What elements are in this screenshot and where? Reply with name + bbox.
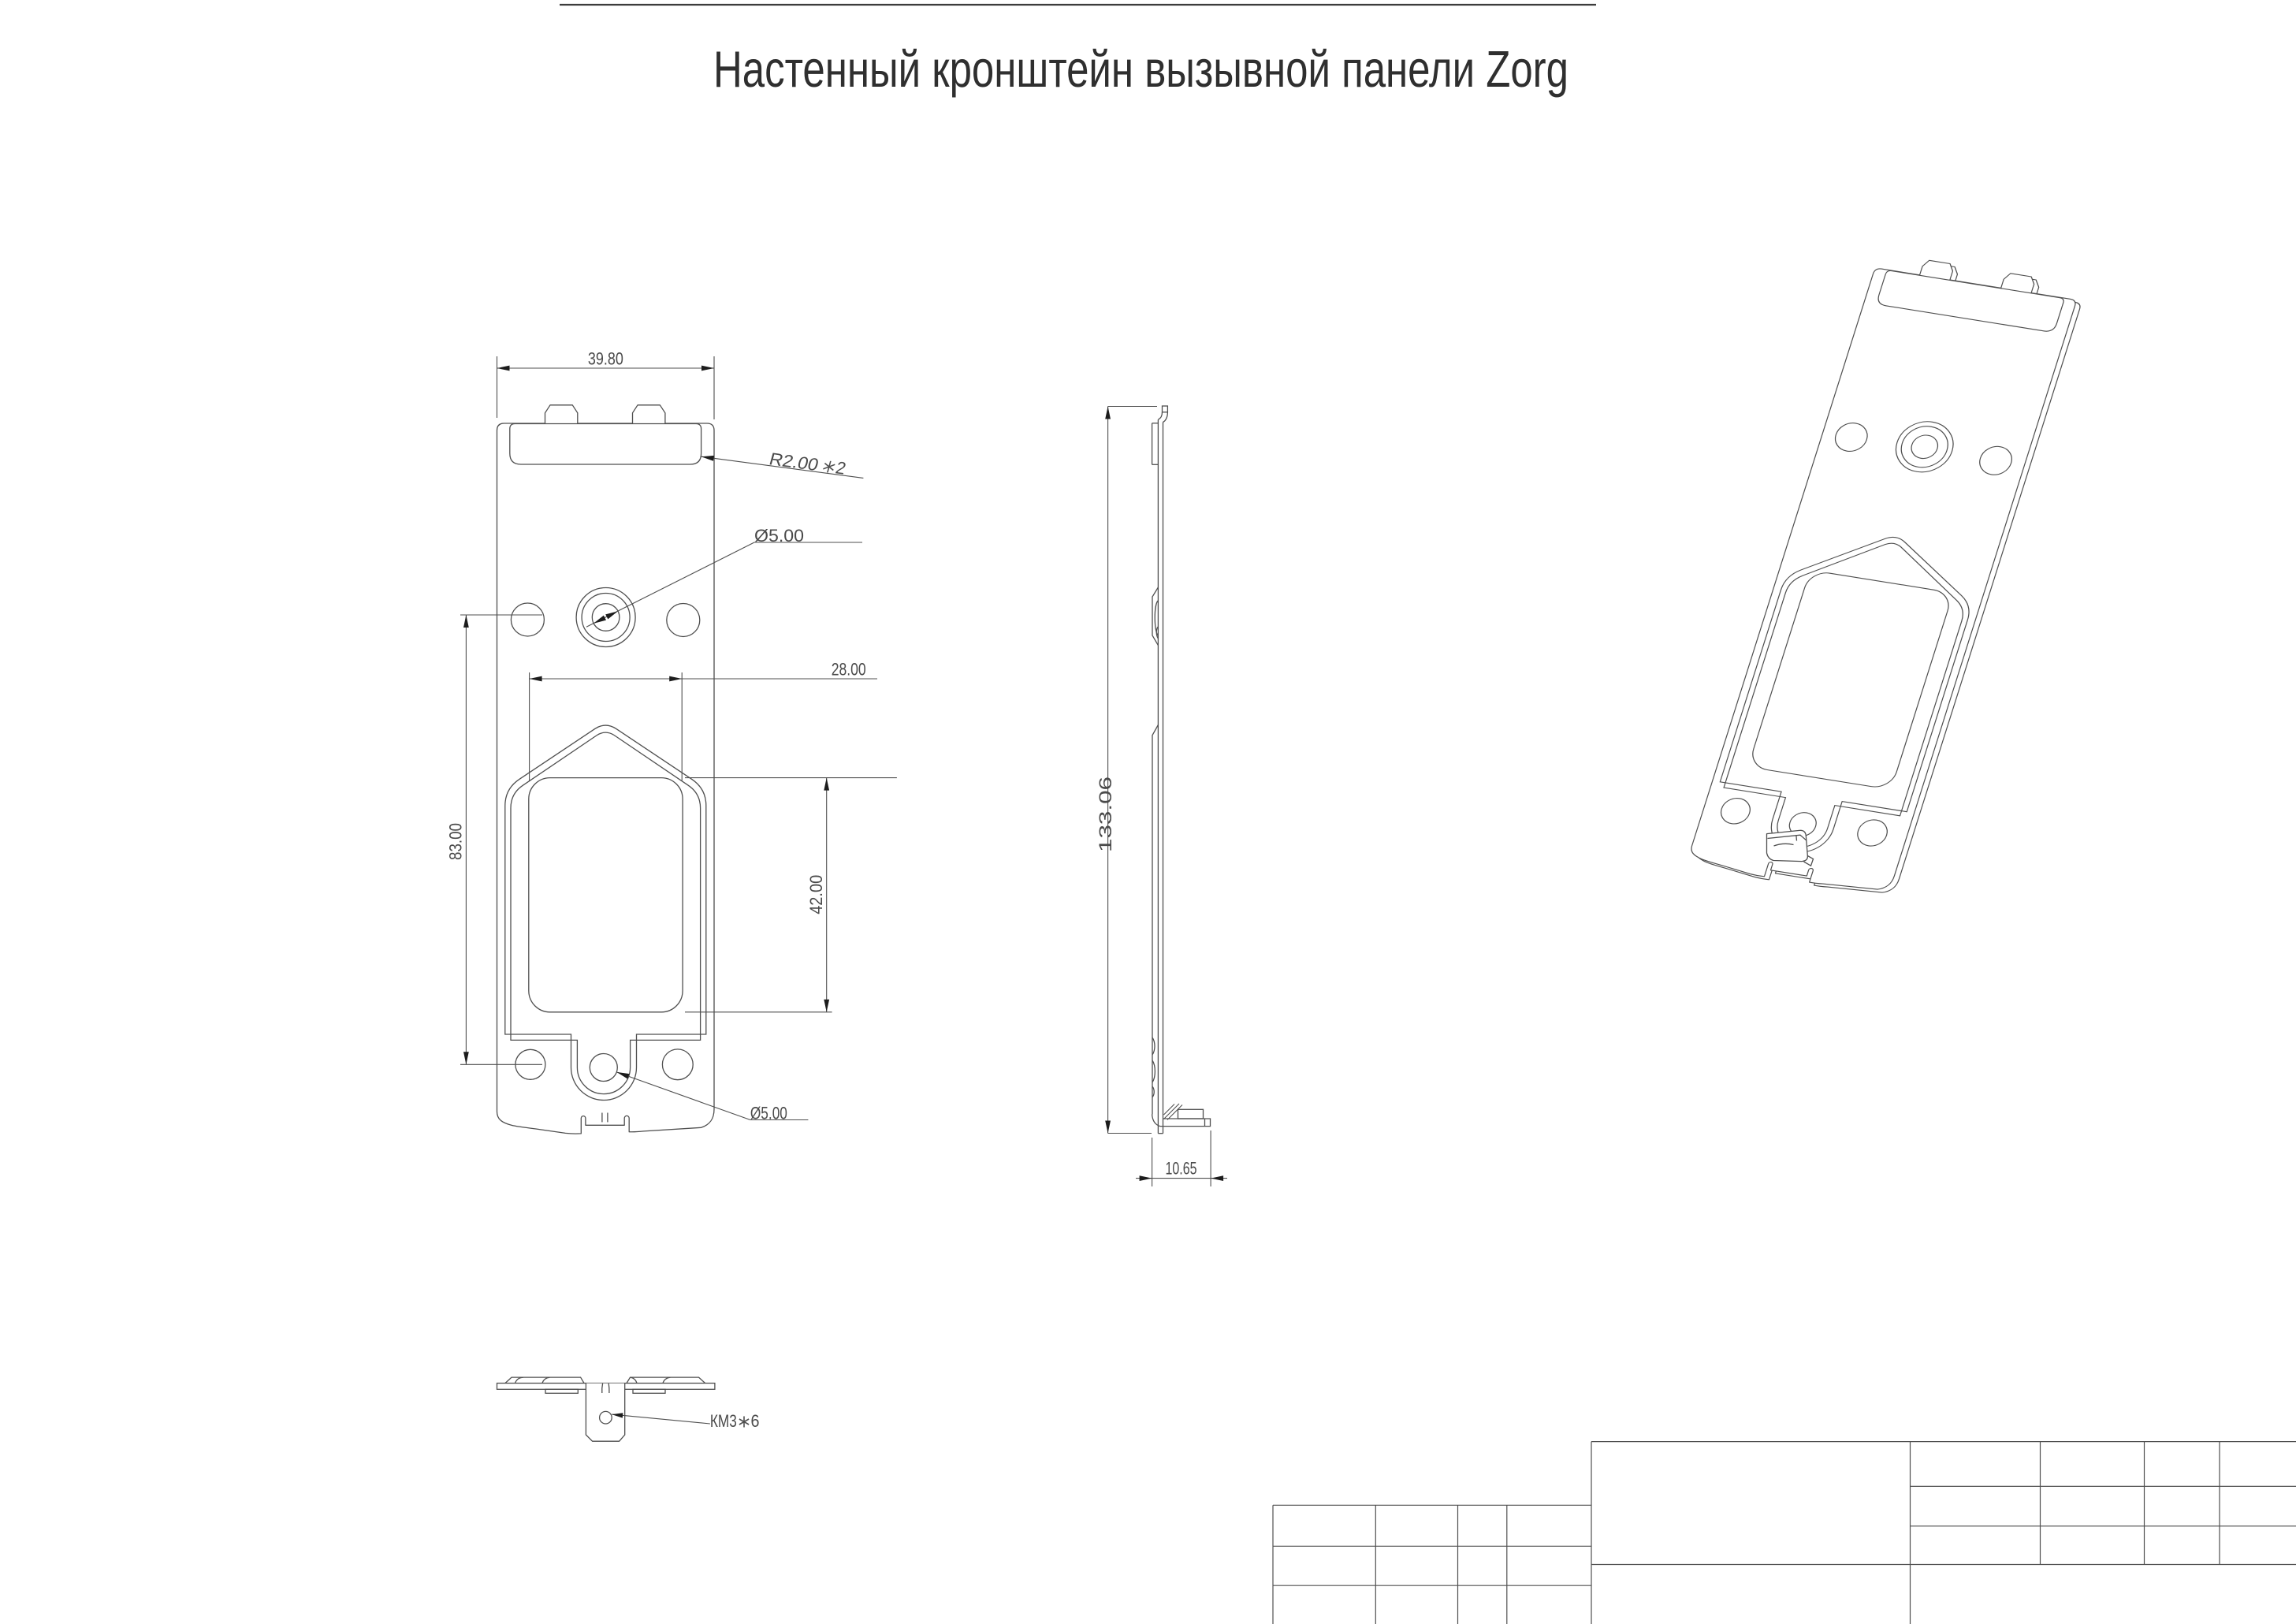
svg-text:10.65: 10.65 <box>1166 1159 1197 1179</box>
svg-text:133.06: 133.06 <box>1096 777 1115 852</box>
svg-text:Ø5.00: Ø5.00 <box>754 526 804 546</box>
svg-text:42.00: 42.00 <box>806 875 826 914</box>
svg-text:КМ3: КМ3 <box>710 1411 737 1431</box>
svg-text:83.00: 83.00 <box>446 823 466 860</box>
svg-text:39.80: 39.80 <box>588 349 623 369</box>
svg-text:Ø5.00: Ø5.00 <box>750 1104 787 1123</box>
svg-text:28.00: 28.00 <box>832 660 866 680</box>
svg-text:Настенный кронштейн вызывной п: Настенный кронштейн вызывной панели Zorg <box>713 40 1568 98</box>
svg-text:6: 6 <box>751 1411 760 1431</box>
